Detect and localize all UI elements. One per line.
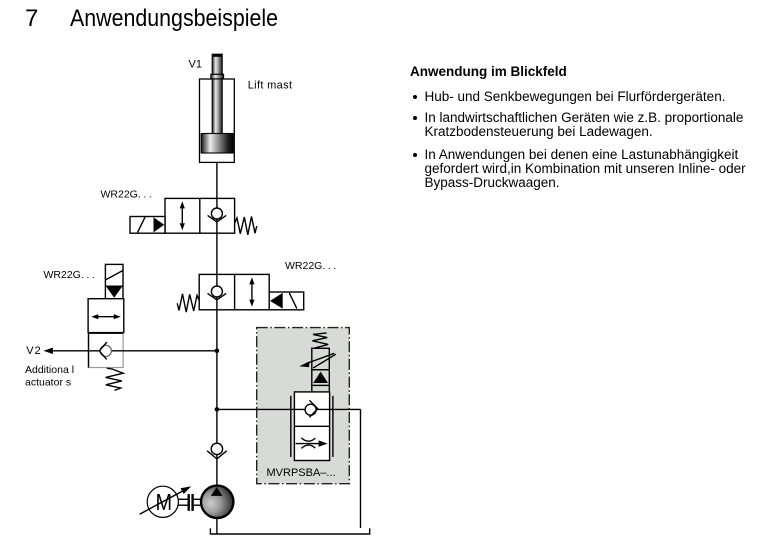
svg-text:Lift mast: Lift mast [248, 79, 293, 91]
svg-text:WR22G. . .: WR22G. . . [285, 260, 336, 272]
svg-text:V1: V1 [189, 59, 202, 71]
svg-text:WR22G. . .: WR22G. . . [101, 189, 152, 201]
svg-text:MVRPSBA–...: MVRPSBA–... [267, 467, 336, 479]
svg-text:WR22G. . .: WR22G. . . [44, 269, 95, 281]
svg-text:actuator s: actuator s [25, 377, 71, 389]
svg-text:M: M [156, 489, 173, 515]
svg-text:Additiona l: Additiona l [25, 364, 74, 376]
svg-text:V2: V2 [26, 345, 41, 357]
